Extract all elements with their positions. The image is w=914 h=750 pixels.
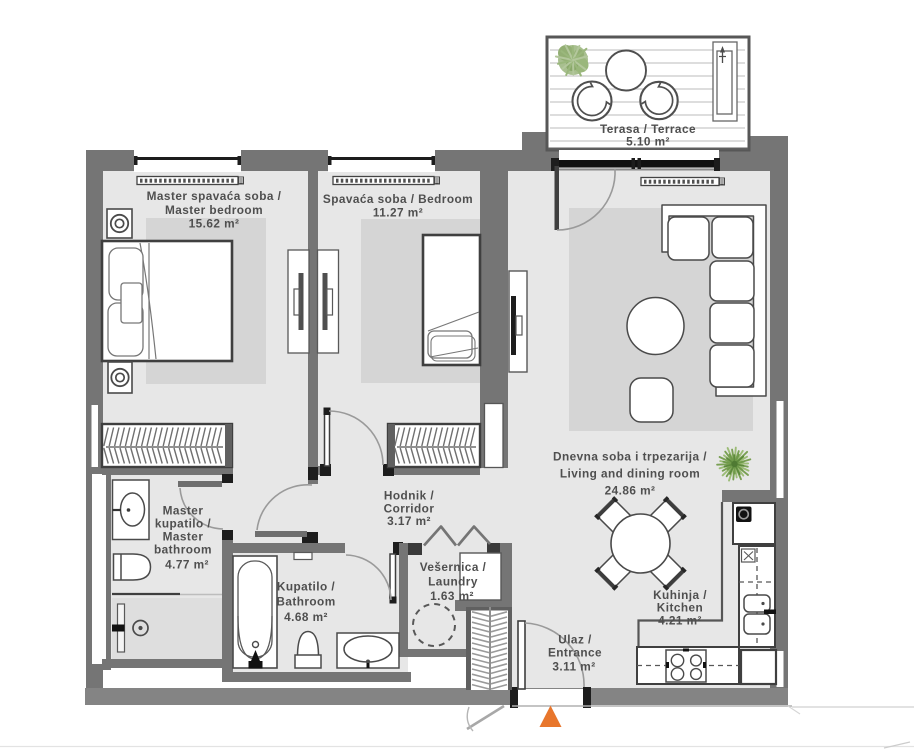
- svg-text:Living and dining room: Living and dining room: [560, 467, 700, 481]
- svg-text:24.86 m²: 24.86 m²: [605, 484, 656, 498]
- svg-text:11.27 m²: 11.27 m²: [373, 206, 423, 220]
- svg-text:Hodnik /: Hodnik /: [384, 489, 434, 503]
- svg-text:Master bedroom: Master bedroom: [165, 203, 263, 217]
- svg-text:Vešernica /: Vešernica /: [420, 560, 487, 574]
- svg-text:Entrance: Entrance: [548, 646, 602, 660]
- svg-text:Laundry: Laundry: [428, 575, 478, 589]
- svg-text:4.77 m²: 4.77 m²: [165, 558, 209, 572]
- svg-text:Master spavaća soba /: Master spavaća soba /: [147, 189, 282, 203]
- svg-text:1.63 m²: 1.63 m²: [430, 589, 474, 603]
- svg-text:kupatilo /: kupatilo /: [155, 517, 212, 531]
- svg-text:3.11 m²: 3.11 m²: [552, 660, 595, 674]
- svg-text:Master: Master: [163, 504, 204, 518]
- svg-text:3.17 m²: 3.17 m²: [387, 514, 431, 528]
- svg-text:Dnevna soba i trpezarija /: Dnevna soba i trpezarija /: [553, 450, 707, 464]
- svg-text:Spavaća soba / Bedroom: Spavaća soba / Bedroom: [323, 192, 473, 206]
- svg-text:Kupatilo /: Kupatilo /: [277, 580, 336, 594]
- svg-text:Ulaz /: Ulaz /: [558, 633, 592, 647]
- svg-text:bathroom: bathroom: [154, 543, 212, 557]
- svg-text:5.10 m²: 5.10 m²: [626, 135, 670, 149]
- svg-text:4.21 m²: 4.21 m²: [658, 614, 702, 628]
- svg-text:Master: Master: [163, 530, 204, 544]
- svg-text:Bathroom: Bathroom: [276, 595, 335, 609]
- svg-text:4.68 m²: 4.68 m²: [284, 610, 328, 624]
- svg-text:15.62 m²: 15.62 m²: [189, 217, 240, 231]
- svg-text:Kitchen: Kitchen: [657, 601, 703, 615]
